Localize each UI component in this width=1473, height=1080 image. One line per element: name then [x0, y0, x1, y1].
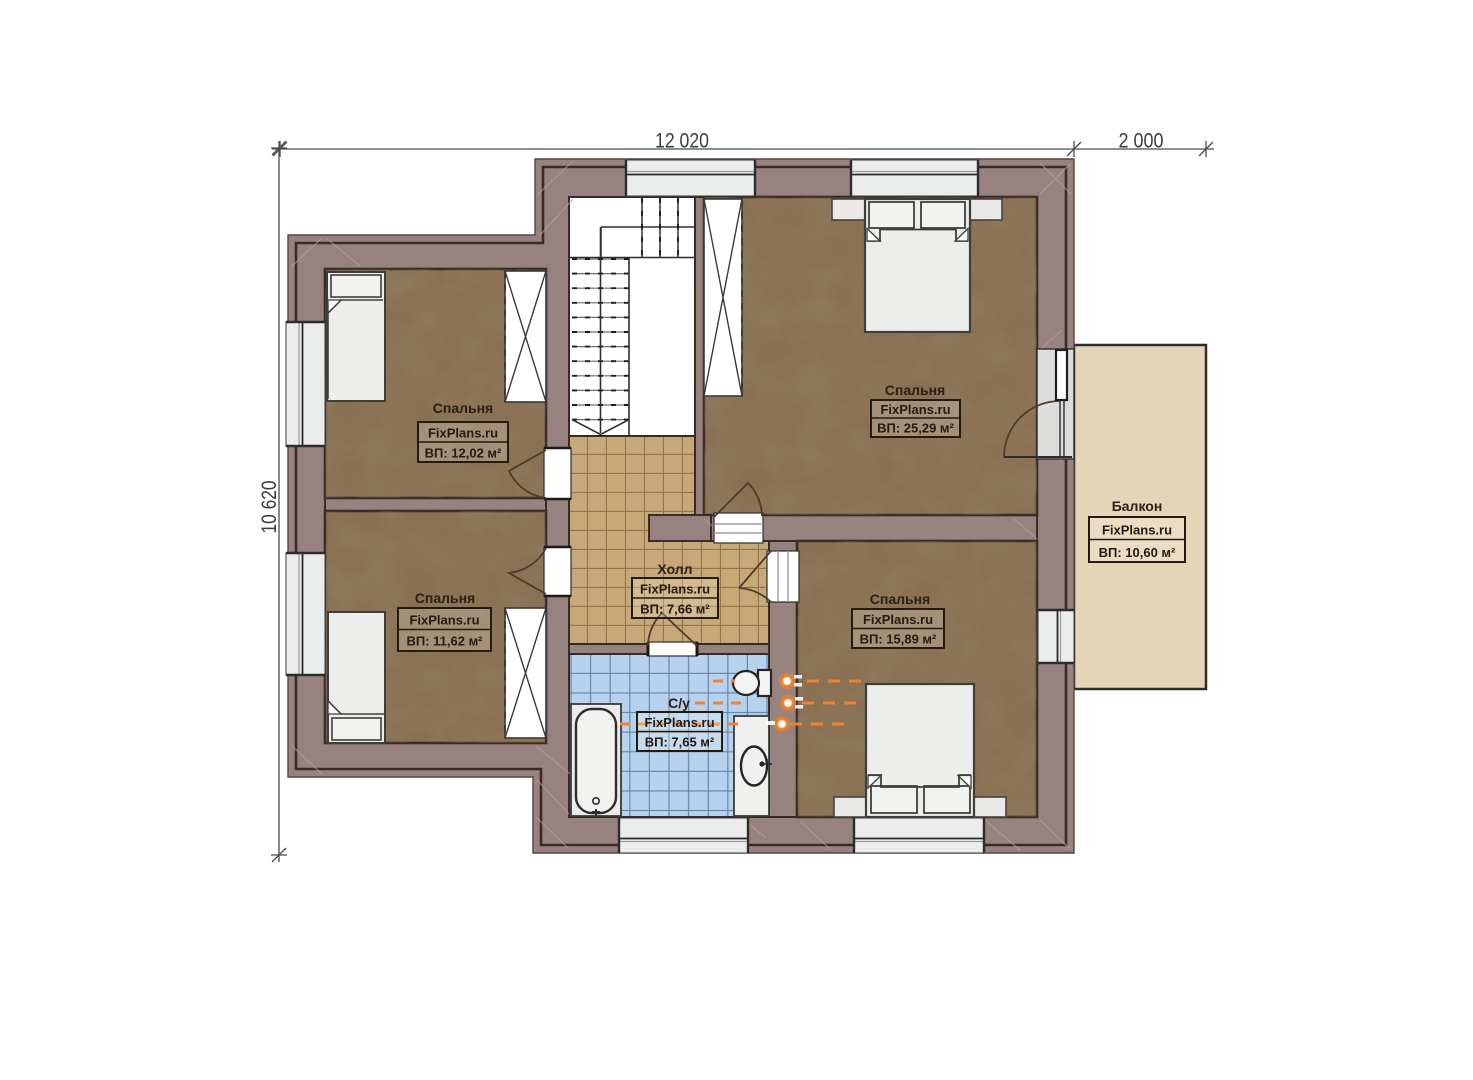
- svg-text:Спальня: Спальня: [433, 400, 493, 416]
- svg-text:ВП: 7,65 м²: ВП: 7,65 м²: [645, 735, 715, 750]
- svg-text:Балкон: Балкон: [1112, 498, 1163, 514]
- svg-text:ВП: 12,02 м²: ВП: 12,02 м²: [425, 446, 502, 461]
- svg-text:Спальня: Спальня: [885, 382, 945, 398]
- svg-text:Спальня: Спальня: [870, 591, 930, 607]
- svg-text:ВП: 11,62 м²: ВП: 11,62 м²: [406, 634, 483, 649]
- svg-text:ВП: 10,60 м²: ВП: 10,60 м²: [1099, 545, 1176, 560]
- svg-text:ВП: 25,29 м²: ВП: 25,29 м²: [877, 421, 954, 436]
- svg-text:FixPlans.ru: FixPlans.ru: [640, 582, 710, 597]
- svg-text:С/у: С/у: [668, 695, 690, 711]
- svg-text:ВП: 15,89 м²: ВП: 15,89 м²: [860, 632, 937, 647]
- svg-text:Холл: Холл: [657, 561, 692, 577]
- svg-text:FixPlans.ru: FixPlans.ru: [1102, 523, 1172, 538]
- svg-text:FixPlans.ru: FixPlans.ru: [428, 426, 498, 441]
- svg-text:FixPlans.ru: FixPlans.ru: [409, 613, 479, 628]
- svg-text:ВП: 7,66 м²: ВП: 7,66 м²: [640, 602, 710, 617]
- svg-text:FixPlans.ru: FixPlans.ru: [880, 402, 950, 417]
- svg-text:2 000: 2 000: [1119, 130, 1164, 153]
- svg-text:Спальня: Спальня: [415, 590, 475, 606]
- svg-text:10 620: 10 620: [258, 481, 281, 534]
- svg-text:FixPlans.ru: FixPlans.ru: [863, 612, 933, 627]
- svg-text:12 020: 12 020: [655, 130, 709, 153]
- svg-text:FixPlans.ru: FixPlans.ru: [644, 715, 714, 730]
